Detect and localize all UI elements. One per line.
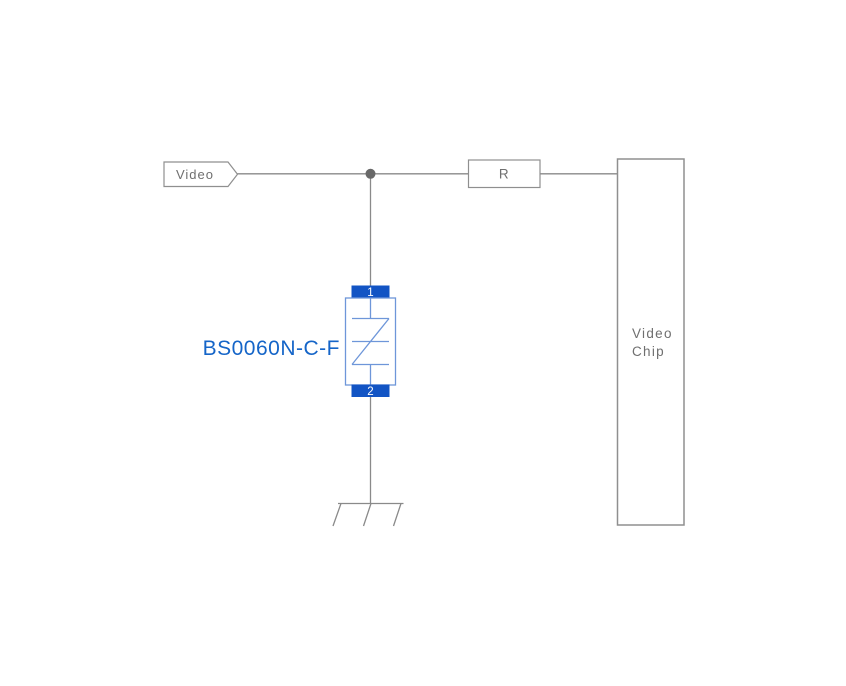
schematic-canvas: Video R Video Chip 1 2 BS0060N-C-F [0, 0, 846, 686]
video-chip-box [618, 159, 685, 525]
schematic-drawing: Video R Video Chip 1 2 BS0060N-C-F [0, 0, 846, 686]
tvs-component: 1 2 BS0060N-C-F [203, 286, 396, 399]
tvs-pin1-number: 1 [367, 287, 373, 299]
video-chip-label-line1: Video [632, 326, 673, 341]
tvs-part-number-label: BS0060N-C-F [203, 337, 340, 360]
junction-dot [366, 169, 376, 179]
ground-symbol-icon [333, 504, 404, 527]
resistor-label: R [499, 167, 509, 182]
video-chip-label-line2: Chip [632, 344, 665, 359]
tvs-pin2-number: 2 [367, 386, 373, 398]
video-net-label: Video [176, 167, 214, 182]
